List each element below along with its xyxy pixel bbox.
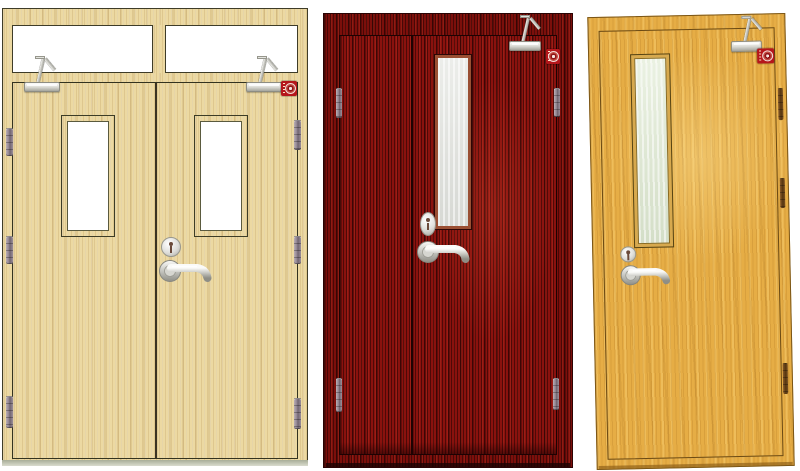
fire-rating-badge — [546, 49, 560, 64]
door-hinge — [294, 398, 301, 429]
door-hinge — [554, 88, 560, 117]
door-hinge — [553, 378, 559, 410]
closer-shoe — [520, 15, 530, 18]
vision-glass — [200, 121, 242, 231]
door-closer — [730, 15, 787, 52]
closer-body — [246, 82, 282, 92]
fire-rating-badge — [281, 81, 297, 96]
door-unit-mahogany — [323, 13, 573, 468]
closer-body — [24, 82, 60, 92]
door-unit-double-beech — [2, 8, 308, 466]
door-hinge — [6, 128, 13, 156]
vision-glass — [438, 58, 468, 226]
lever-handle — [616, 260, 677, 295]
product-showcase — [0, 0, 800, 471]
door-hinge — [783, 363, 789, 394]
closer-arm — [751, 18, 762, 31]
closer-arm — [521, 18, 530, 43]
door-hinge — [6, 396, 13, 428]
threshold-shadow — [326, 463, 570, 467]
door-opening — [12, 82, 298, 459]
door-closer — [509, 15, 565, 51]
keyhole-escutcheon — [420, 212, 436, 236]
closer-shoe — [35, 56, 45, 59]
door-hinge — [336, 88, 342, 118]
closer-shoe — [741, 16, 751, 19]
transom-mullion — [153, 25, 165, 73]
closer-arm — [258, 59, 267, 84]
badge-seal-icon — [548, 51, 559, 62]
vision-glass — [67, 121, 109, 231]
closer-body — [509, 41, 541, 51]
door-hinge — [6, 236, 13, 264]
meeting-stile — [411, 36, 413, 454]
door-leaf-narrow — [340, 36, 412, 454]
badge-text-marks — [759, 50, 761, 61]
closer-shoe — [257, 56, 267, 59]
door-hinge — [294, 236, 301, 264]
door-closer — [24, 56, 80, 92]
vision-glass — [634, 57, 670, 244]
door-hinge — [780, 178, 786, 208]
vision-panel — [630, 53, 674, 248]
vision-panel — [434, 54, 472, 230]
closer-arm — [266, 58, 277, 71]
keyhole-escutcheon — [161, 237, 181, 257]
door-hinge — [294, 120, 301, 150]
door-hinge — [778, 88, 784, 120]
fire-rating-badge — [757, 48, 774, 63]
threshold-shadow — [2, 460, 308, 466]
door-leaf — [599, 27, 784, 460]
badge-seal-icon — [762, 50, 773, 61]
closer-arm — [36, 59, 45, 84]
closer-arm — [44, 58, 55, 71]
vision-panel-left — [61, 115, 115, 237]
closer-arm — [529, 17, 540, 30]
bottom-rail-shadow — [340, 442, 556, 454]
vision-panel-right — [194, 115, 248, 237]
lever-handle — [156, 257, 216, 293]
door-unit-oak — [587, 13, 794, 470]
lever-handle — [414, 238, 474, 274]
badge-seal-icon — [285, 83, 296, 94]
door-hinge — [336, 378, 342, 412]
